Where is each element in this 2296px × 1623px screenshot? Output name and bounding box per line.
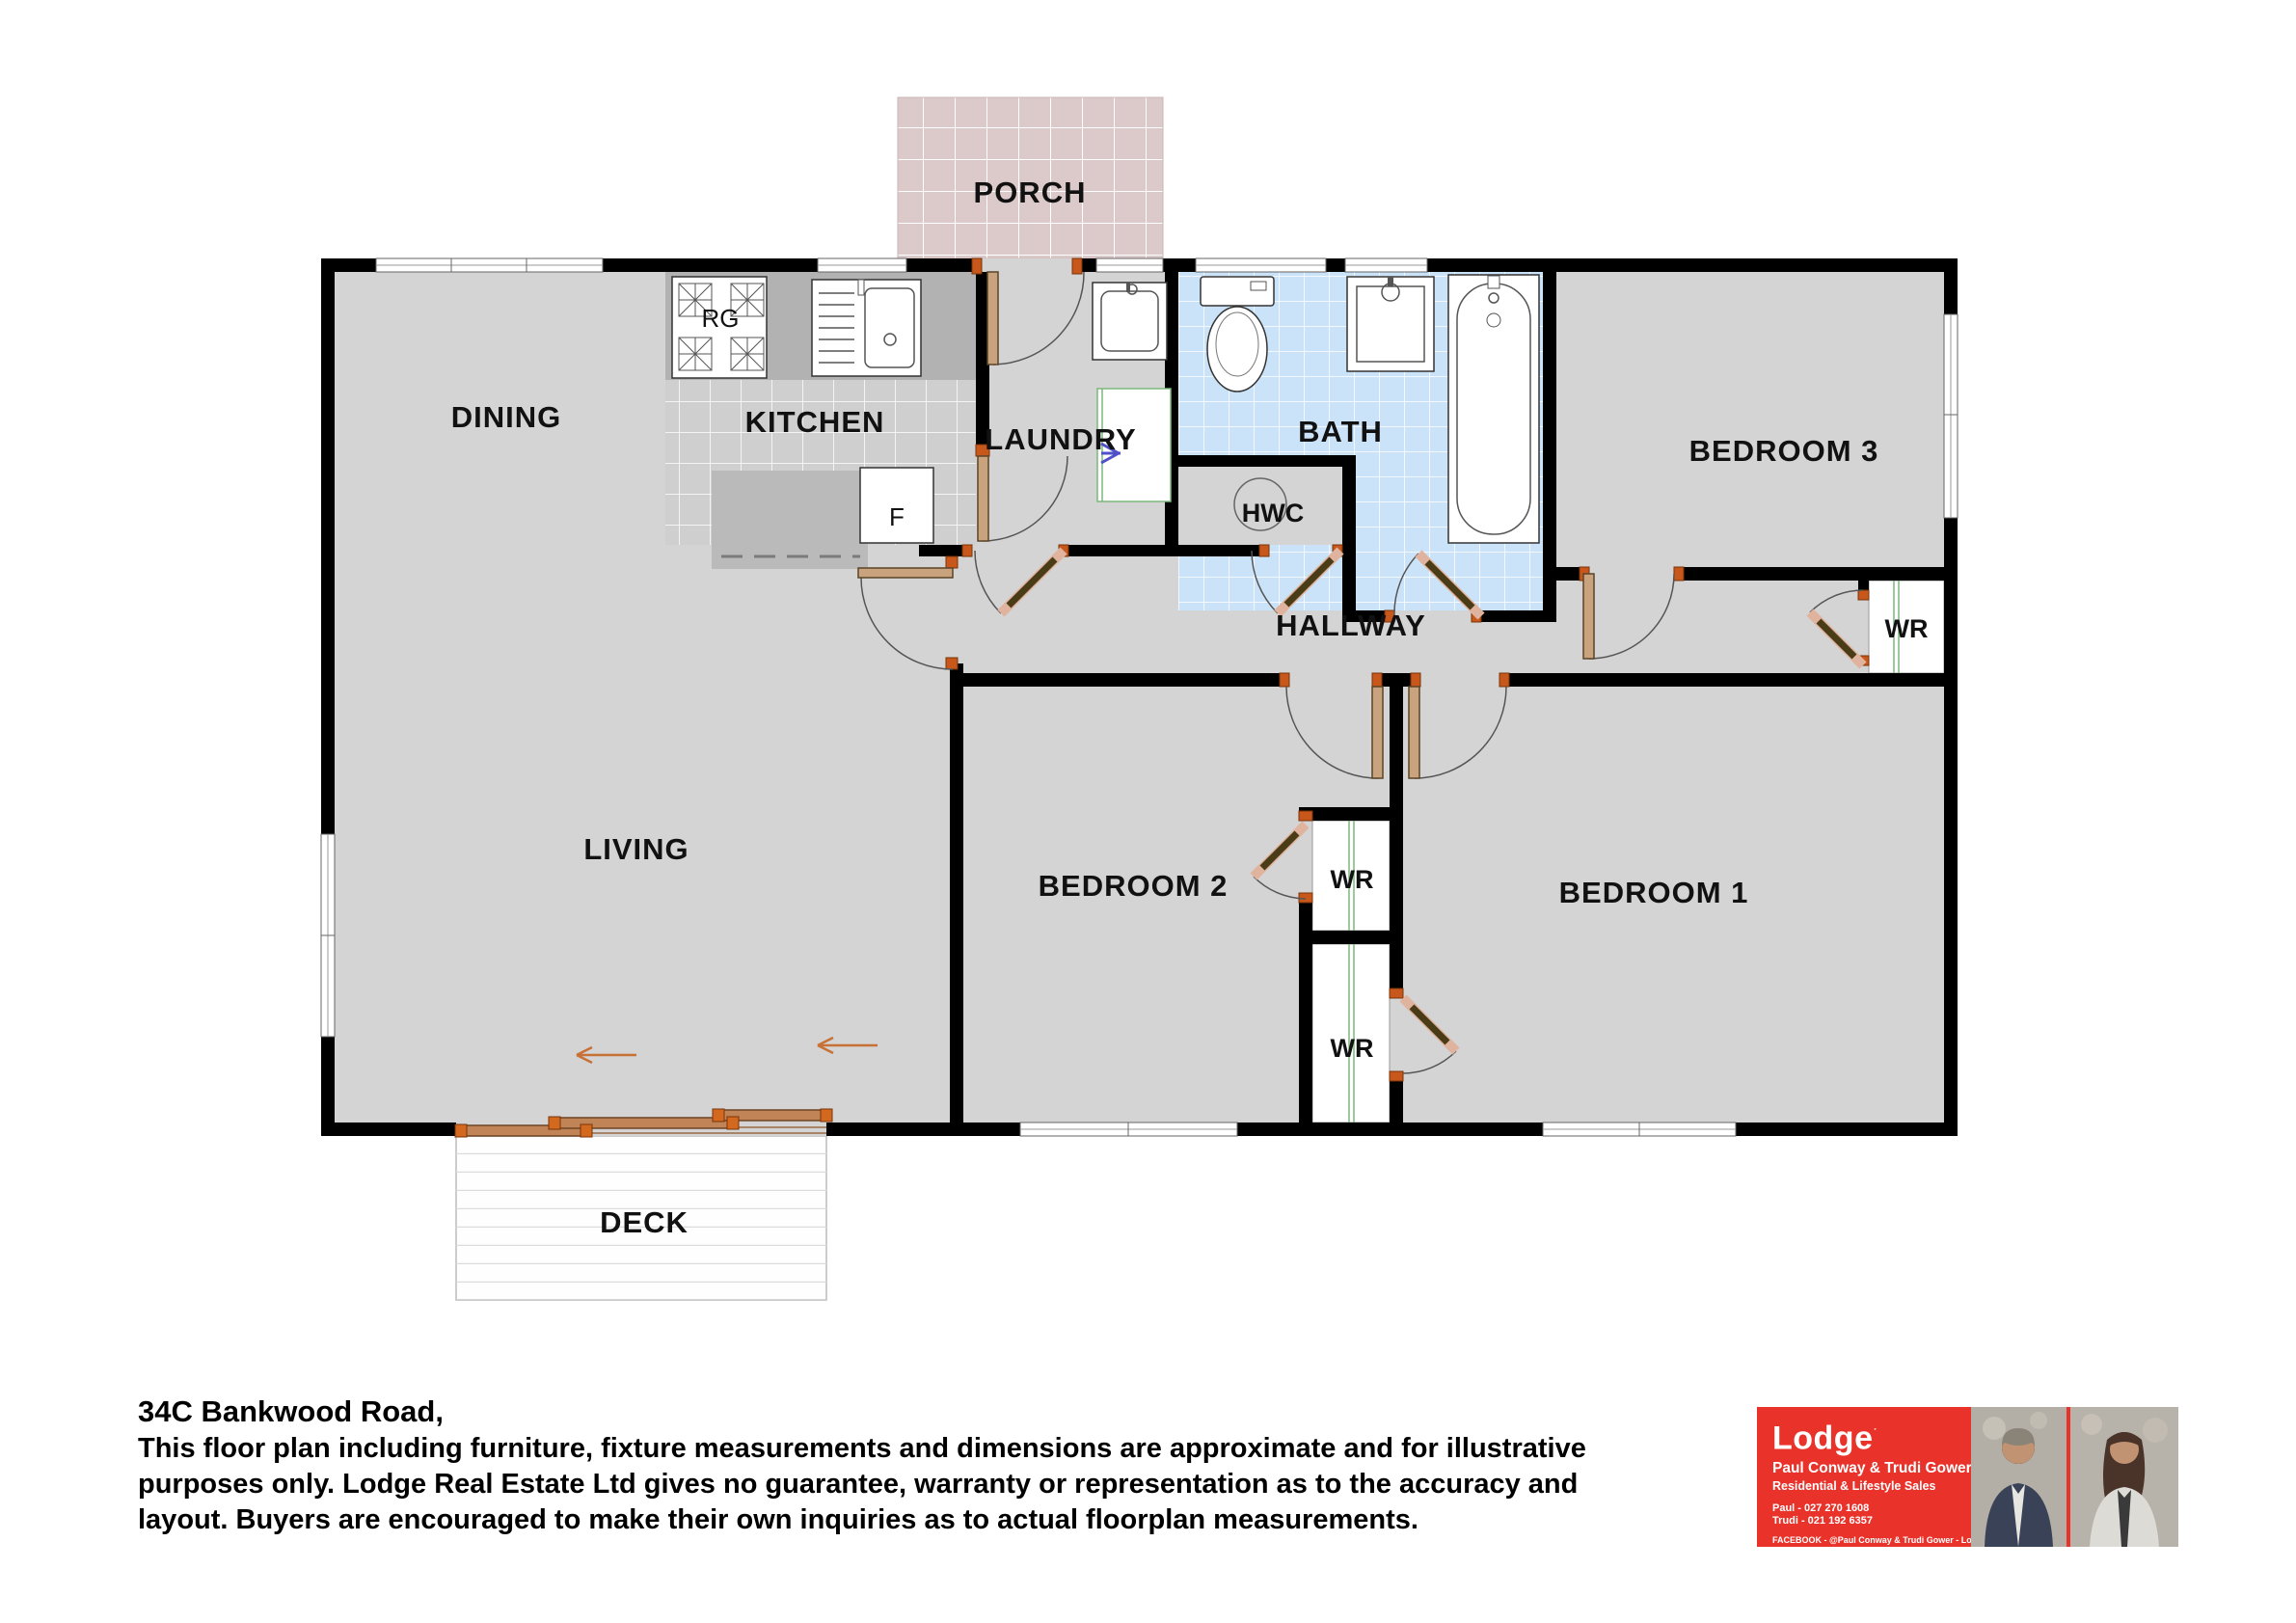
page: { "floorplan": { "rooms": { "porch": "PO…	[0, 0, 2296, 1623]
disclaimer-line-2: purposes only. Lodge Real Estate Ltd giv…	[138, 1467, 1586, 1502]
agent-phone-1: Paul - 027 270 1608	[1772, 1502, 1971, 1514]
window-bedroom1	[1543, 1123, 1736, 1136]
window-bath-1	[1196, 258, 1326, 272]
porch-label: PORCH	[974, 176, 1087, 209]
agent-names: Paul Conway & Trudi Gower	[1772, 1460, 1971, 1477]
range-label: RG	[702, 304, 740, 333]
lodge-logo: Lodge˙	[1772, 1417, 1971, 1454]
agent-card: Lodge˙ Paul Conway & Trudi Gower Residen…	[1757, 1407, 2178, 1547]
laundry-label: LAUNDRY	[985, 422, 1136, 456]
disclaimer-text: This floor plan including furniture, fix…	[138, 1431, 1586, 1538]
kitchen-sink-icon	[812, 280, 921, 376]
window-laundry	[1096, 258, 1163, 272]
bedroom1-label: BEDROOM 1	[1559, 876, 1749, 909]
kitchen-island	[712, 471, 868, 569]
wr-bed2-upper-label: WR	[1331, 865, 1374, 894]
window-living	[321, 834, 335, 1037]
address-text: 34C Bankwood Road,	[138, 1394, 444, 1429]
hwc-label: HWC	[1242, 499, 1304, 527]
disclaimer-line-1: This floor plan including furniture, fix…	[138, 1431, 1586, 1467]
window-dining	[376, 258, 603, 272]
deck-label: DECK	[600, 1205, 689, 1239]
agent-phone-2: Trudi - 021 192 6357	[1772, 1515, 1971, 1527]
bedroom3-label: BEDROOM 3	[1689, 434, 1879, 468]
bathtub-icon	[1448, 275, 1539, 543]
window-bedroom3	[1944, 314, 1958, 518]
laundry-tub-icon	[1093, 283, 1167, 360]
bath-vanity-icon	[1347, 277, 1434, 371]
agent-photo-male	[1971, 1407, 2066, 1547]
window-bath-2	[1345, 258, 1427, 272]
fridge-label: F	[889, 502, 905, 531]
agent-card-text: Lodge˙ Paul Conway & Trudi Gower Residen…	[1757, 1407, 1971, 1547]
window-kitchen	[818, 258, 906, 272]
window-bedroom2	[1020, 1123, 1237, 1136]
agent-division: Residential & Lifestyle Sales	[1772, 1479, 1971, 1493]
agent-facebook: FACEBOOK - @Paul Conway & Trudi Gower - …	[1772, 1535, 1971, 1545]
wr-bed3-label: WR	[1885, 614, 1929, 643]
living-label: LIVING	[583, 832, 689, 866]
agent-photo-female	[2070, 1407, 2178, 1547]
hallway-label: HALLWAY	[1276, 609, 1426, 642]
bath-label: BATH	[1298, 415, 1383, 448]
bedroom2-label: BEDROOM 2	[1039, 869, 1229, 903]
front-door-opening	[982, 258, 1078, 272]
dining-label: DINING	[451, 400, 562, 434]
kitchen-label: KITCHEN	[745, 405, 885, 439]
wr-bed2-lower-label: WR	[1331, 1034, 1374, 1063]
agent-photos	[1971, 1407, 2178, 1547]
floorplan: PORCH DINING KITCHEN LAUNDRY BATH BEDROO…	[0, 0, 2296, 1623]
disclaimer-line-3: layout. Buyers are encouraged to make th…	[138, 1502, 1586, 1538]
